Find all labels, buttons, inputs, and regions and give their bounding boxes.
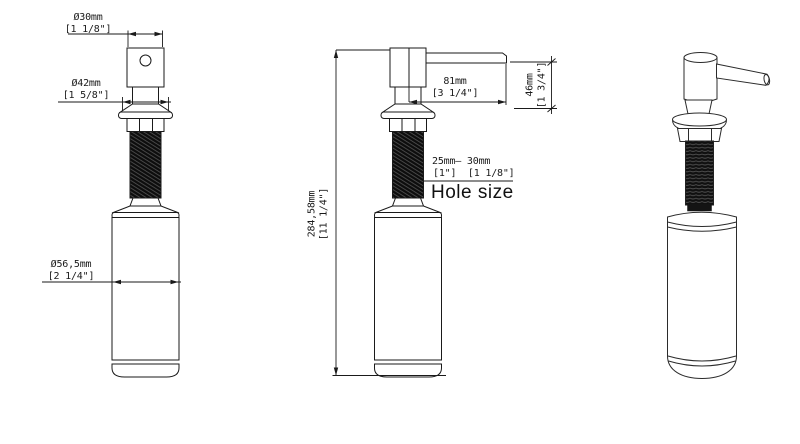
persp-neck (685, 100, 712, 114)
front-bottle-body (112, 218, 179, 361)
side-collar (393, 198, 424, 206)
front-flange (121, 104, 171, 112)
side-flange-plate (381, 112, 435, 119)
side-spout (426, 53, 507, 63)
front-pump-head (127, 48, 164, 87)
persp-threaded-shaft (686, 141, 714, 205)
persp-hex-nut (678, 129, 722, 142)
front-collar (130, 198, 161, 206)
dim-value-imperial: [3 1/4"] (432, 88, 479, 99)
side-pump-head (390, 48, 426, 87)
hole-size-range-imperial: [1"] [1 1/8"] (433, 168, 515, 180)
side-threaded-shaft (393, 132, 424, 199)
front-head-button (140, 55, 151, 66)
dim-value-metric: Ø42mm (71, 78, 100, 89)
soap-dispenser-line-art (0, 0, 800, 444)
front-flange-dimension: Ø42mm [1 5/8"] (56, 78, 116, 101)
hole-size-range-metric: 25mm— 30mm (432, 156, 490, 168)
side-overall-height-dimension: 284,58mm [11 1/4"] (307, 188, 330, 240)
dim-value-imperial: [1 1/8"] (65, 24, 112, 35)
dim-value-imperial: [11 1/4"] (318, 188, 329, 240)
dim-value-metric: Ø56,5mm (51, 259, 92, 270)
persp-spout (717, 64, 770, 85)
front-head-dimension: Ø30mm [1 1/8"] (60, 12, 116, 35)
front-bottle-base (112, 364, 179, 377)
front-neck (133, 87, 159, 104)
persp-collar (688, 204, 712, 211)
front-threaded-shaft (130, 132, 161, 199)
perspective-view-drawing (668, 53, 771, 379)
side-neck (395, 87, 421, 104)
side-spout-height-dimension: 46mm [1 3/4"] (525, 62, 548, 109)
front-bottle-dimension: Ø56,5mm [2 1/4"] (42, 259, 100, 282)
front-bottle-shoulder (112, 206, 179, 213)
front-hex-nut (127, 119, 164, 132)
side-hex-nut (390, 119, 427, 132)
side-flange (383, 104, 433, 112)
dim-value-imperial: [1 3/4"] (536, 62, 547, 109)
front-flange-plate (119, 112, 173, 119)
persp-head-body (684, 58, 717, 103)
side-bottle-body (375, 218, 442, 361)
dim-value-imperial: [2 1/4"] (48, 271, 95, 282)
persp-head-top (684, 53, 717, 63)
hole-size-label: Hole size (431, 183, 514, 203)
side-spout-reach-dimension: 81mm [3 1/4"] (426, 76, 484, 99)
technical-drawing-canvas: Ø30mm [1 1/8"] Ø42mm [1 5/8"] Ø56,5mm [2… (0, 0, 800, 444)
dim-value-metric: 81mm (443, 76, 466, 87)
side-bottle-shoulder (375, 206, 442, 213)
dim-value-imperial: [1 5/8"] (63, 90, 110, 101)
persp-bottle (668, 212, 737, 378)
dim-value-metric: Ø30mm (73, 12, 102, 23)
dim-value-metric: 284,58mm (307, 191, 318, 238)
persp-flange (673, 113, 727, 126)
dim-value-metric: 46mm (525, 73, 536, 96)
